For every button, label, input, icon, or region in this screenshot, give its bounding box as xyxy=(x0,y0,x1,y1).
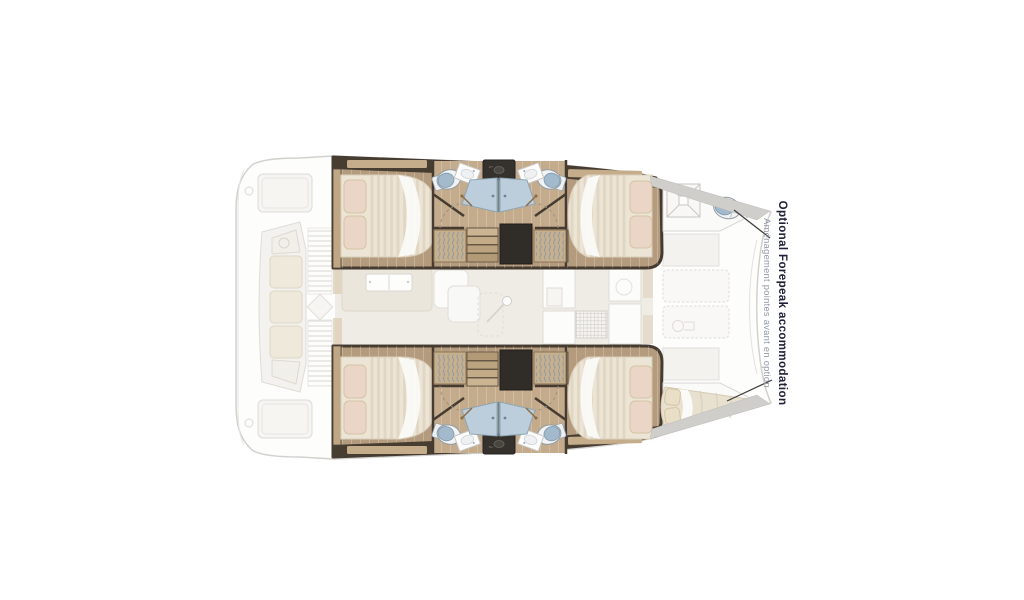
stair-tread xyxy=(467,254,498,263)
galley-floor-grating xyxy=(576,311,607,338)
cockpit-seat-aft-starboard xyxy=(258,400,312,438)
forepeak-stowage xyxy=(663,234,719,266)
pillow xyxy=(630,181,652,213)
fwd-door-frame xyxy=(643,268,653,298)
stair-void xyxy=(500,224,532,264)
bench-cushion xyxy=(270,326,302,358)
saloon-aft-door-frame xyxy=(333,318,342,345)
starboard-hull-accommodation xyxy=(333,346,662,457)
shower-stall xyxy=(462,178,535,212)
double-bed-aft xyxy=(341,173,434,259)
chaise-seat xyxy=(448,286,480,322)
cockpit-seat-aft-port xyxy=(258,174,312,212)
galley-counter xyxy=(609,304,641,344)
fwd-door-frame xyxy=(643,315,653,344)
galley-counter xyxy=(543,311,575,344)
pillow xyxy=(344,180,366,213)
foredeck-locker xyxy=(663,306,729,338)
bed-stripes xyxy=(572,173,624,259)
pillow xyxy=(630,216,652,248)
stair-tread xyxy=(467,237,498,245)
stair-tread xyxy=(467,228,498,236)
vanity-unit xyxy=(483,160,515,180)
saloon-aft-door-frame xyxy=(333,268,342,294)
forepeak-stowage xyxy=(663,348,719,380)
floor-plan-page: Optional Forepeak accommodation Aménagem… xyxy=(0,0,1024,600)
saloon xyxy=(333,268,653,345)
floor-plan-svg: Optional Forepeak accommodation Aménagem… xyxy=(0,0,1024,600)
louvre-vent xyxy=(308,228,332,294)
louvre-vent xyxy=(308,320,332,386)
bench-cushion xyxy=(270,291,302,323)
foredeck-locker xyxy=(663,270,729,302)
annotation-title: Optional Forepeak accommodation xyxy=(776,201,788,406)
galley-counter xyxy=(609,268,641,301)
companionway-stairs xyxy=(434,224,566,264)
stair-tread xyxy=(467,245,498,253)
pillow xyxy=(664,388,681,406)
bench-cushion xyxy=(270,256,302,288)
port-hull-accommodation xyxy=(333,157,662,268)
annotation-subtitle: Aménagement pointes avant en option xyxy=(762,218,772,388)
headboard-trim xyxy=(333,169,341,268)
shelf xyxy=(347,160,427,168)
pillow xyxy=(344,216,366,249)
